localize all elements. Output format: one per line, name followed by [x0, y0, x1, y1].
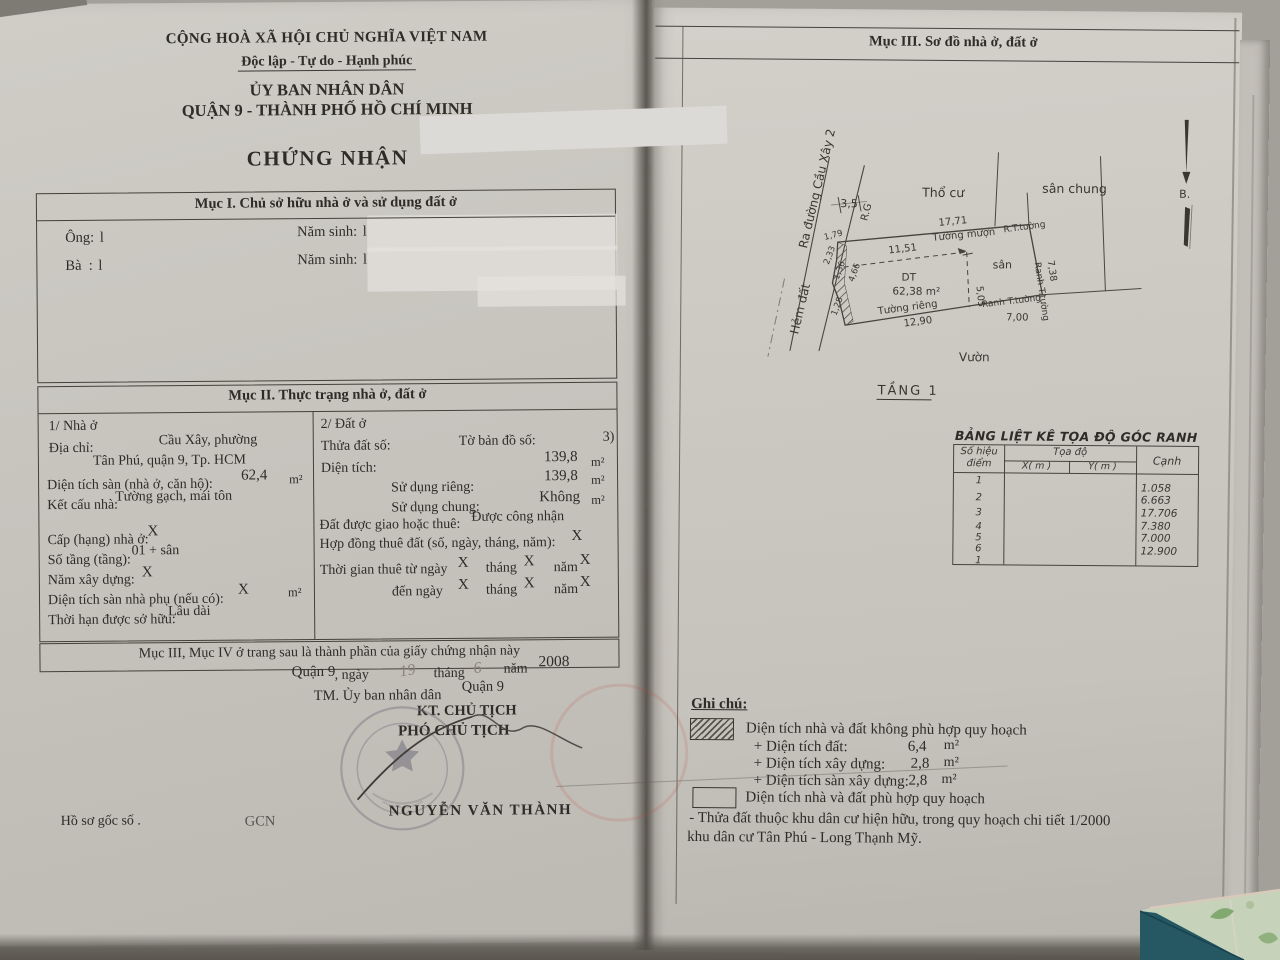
note-area-item-unit: m² — [944, 738, 959, 754]
nonconform-legend-swatch-icon — [690, 718, 734, 740]
conform-legend-swatch-icon — [692, 787, 736, 808]
point-number: 3 — [954, 507, 1004, 518]
edge-length: 1.058 — [1141, 482, 1171, 494]
coord-table: Số hiệu điểm Tọa độ X( m ) Y( m ) Cạnh 1… — [952, 444, 1199, 567]
edge-header: Cạnh — [1136, 454, 1198, 467]
point-header-line2: điểm — [954, 458, 1004, 469]
yard-label: sân — [993, 258, 1013, 271]
garden-label: Vườn — [959, 350, 990, 364]
point-header-line1: Số hiệu — [954, 446, 1004, 457]
point-number: 1 — [953, 555, 1003, 566]
site-plan-drawing: Ra đường Cầu Xây 2 Hẻm đất 3,5 R.G Thổ c… — [655, 98, 1243, 433]
point-number: 4 — [954, 521, 1004, 532]
edge-length: 6.663 — [1141, 494, 1171, 506]
coord-table-title: BẢNG LIỆT KÊ TỌA ĐỘ GÓC RANH — [953, 428, 1199, 445]
parcel-area-label: DT — [901, 272, 916, 284]
left-edge-dim: 1,36 — [832, 260, 848, 281]
edge-length: 17.706 — [1141, 507, 1178, 519]
point-number: 2 — [954, 492, 1004, 503]
notes-title: Ghi chú: — [691, 696, 747, 713]
rt-wall-label: R.T.tường — [1003, 219, 1046, 235]
alley-label: Hẻm đất — [787, 282, 813, 336]
note-area-item-label: + Diện tích đất: — [754, 738, 848, 756]
note-area-item-value: 2,8 — [908, 773, 927, 790]
coord-header: Tọa độ — [1004, 446, 1136, 458]
road-width-dim: 3,5 — [840, 197, 858, 210]
point-number: 1 — [954, 475, 1004, 486]
bottom-right-edge-dim: 7,00 — [1006, 312, 1028, 323]
notes-remark-line1: - Thửa đất thuộc khu dân cư hiện hữu, tr… — [689, 810, 1110, 830]
bottom-left-edge-dim: 12,90 — [903, 315, 933, 330]
right-edge-dim: 7,38 — [1045, 260, 1059, 283]
edge-length: 7.380 — [1141, 520, 1171, 532]
note-area-item-unit: m² — [942, 772, 957, 788]
document-photo: CỘNG HOÀ XÃ HỘI CHỦ NGHĨA VIỆT NAM Độc l… — [0, 0, 1280, 960]
point-number: 6 — [953, 543, 1003, 554]
north-label: B. — [1179, 188, 1190, 201]
conform-legend-label: Diện tích nhà và đất phù hợp quy hoạch — [745, 789, 985, 808]
top-edge-dim: 17,71 — [938, 215, 968, 229]
parcel-area-value: 62,38 m² — [892, 286, 940, 298]
rg-label: R.G — [859, 202, 874, 222]
inner-width-dim: 11,51 — [888, 242, 918, 256]
north-arrow-icon — [1184, 120, 1188, 174]
floor-label: TẦNG 1 — [877, 381, 939, 398]
x-header: X( m ) — [1004, 460, 1069, 472]
photo-bottom-shadow — [0, 934, 1280, 960]
edge-length: 12.900 — [1140, 545, 1177, 557]
note-area-item-value: 6,4 — [908, 739, 927, 756]
left-edge-dim: 1,79 — [823, 228, 844, 242]
point-number: 5 — [953, 532, 1003, 543]
shared-yard-label: sân chung — [1042, 181, 1107, 197]
residential-land-label: Thổ cư — [921, 185, 965, 200]
nonconform-legend-label: Diện tích nhà và đất không phù hợp quy h… — [746, 720, 1027, 739]
notes-remark-line2: khu dân cư Tân Phú - Long Thạnh Mỹ. — [687, 829, 922, 848]
bottom-right-edge-label: Ranh T.tường — [981, 293, 1041, 311]
edge-length: 7.000 — [1140, 532, 1170, 544]
floor-tiles-corner — [1140, 855, 1280, 960]
note-area-item-label: + Diện tích xây dựng: — [754, 755, 886, 773]
left-edge-dim: 4,66 — [847, 262, 863, 283]
y-header: Y( m ) — [1069, 461, 1136, 473]
